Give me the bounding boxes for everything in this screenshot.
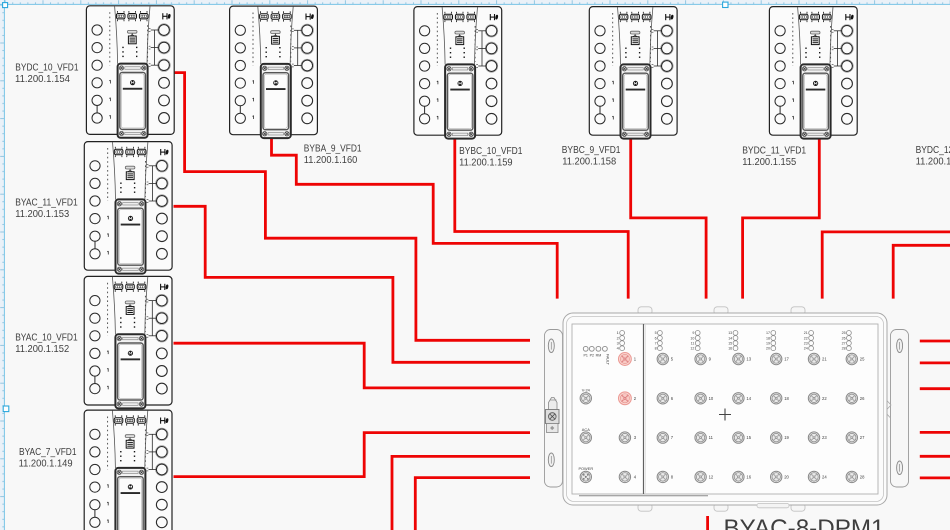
svg-text:BYBC_9_VFD1: BYBC_9_VFD1	[562, 145, 621, 156]
svg-text:13: 13	[728, 331, 732, 335]
svg-text:10: 10	[690, 336, 694, 340]
svg-text:ACA: ACA	[582, 427, 590, 432]
svg-text:BYAC_11_VFD1: BYAC_11_VFD1	[15, 197, 78, 208]
svg-text:19: 19	[766, 341, 770, 345]
svg-text:BYAC_10_VFD1: BYAC_10_VFD1	[15, 333, 78, 344]
svg-text:16: 16	[728, 347, 732, 351]
svg-text:FAULT: FAULT	[606, 354, 610, 366]
svg-text:11.200.1.155: 11.200.1.155	[742, 157, 796, 168]
svg-text:11.200.1.149: 11.200.1.149	[19, 458, 73, 469]
svg-text:V-24: V-24	[582, 388, 591, 393]
svg-text:23: 23	[822, 435, 827, 440]
svg-text:POWER: POWER	[578, 466, 593, 471]
svg-text:18: 18	[784, 396, 789, 401]
svg-text:11: 11	[691, 341, 695, 345]
svg-text:5: 5	[655, 331, 657, 335]
svg-text:13: 13	[746, 357, 751, 362]
svg-text:15: 15	[746, 435, 751, 440]
svg-text:25: 25	[842, 331, 846, 335]
svg-text:16: 16	[746, 475, 751, 480]
svg-text:22: 22	[804, 336, 808, 340]
svg-text:6: 6	[655, 336, 657, 340]
svg-text:28: 28	[860, 475, 865, 480]
svg-text:BYDC_12_VFD1: BYDC_12_VFD1	[916, 145, 950, 156]
svg-text:11.200.1.153: 11.200.1.153	[15, 209, 69, 220]
svg-text:RM: RM	[596, 353, 602, 357]
svg-text:17: 17	[784, 357, 789, 362]
svg-text:18: 18	[766, 336, 770, 340]
svg-text:25: 25	[860, 357, 865, 362]
svg-text:7: 7	[655, 341, 657, 345]
svg-text:BYAC_7_VFD1: BYAC_7_VFD1	[19, 447, 77, 458]
svg-text:11.200.1.152: 11.200.1.152	[15, 344, 69, 355]
svg-text:26: 26	[842, 336, 846, 340]
svg-text:BYBA_9_VFD1: BYBA_9_VFD1	[304, 144, 362, 155]
svg-text:14: 14	[728, 336, 732, 340]
svg-text:12: 12	[690, 347, 694, 351]
svg-text:BYDC_11_VFD1: BYDC_11_VFD1	[742, 145, 806, 156]
svg-text:15: 15	[728, 341, 732, 345]
svg-text:20: 20	[766, 347, 770, 351]
svg-text:28: 28	[842, 347, 846, 351]
svg-text:BYAC-8-DPM1: BYAC-8-DPM1	[724, 515, 885, 530]
svg-text:11.200.1.160: 11.200.1.160	[304, 155, 358, 166]
svg-text:21: 21	[822, 357, 827, 362]
svg-text:24: 24	[804, 347, 808, 351]
svg-text:20: 20	[784, 475, 789, 480]
svg-text:P2: P2	[590, 353, 594, 357]
svg-text:17: 17	[766, 331, 770, 335]
svg-text:19: 19	[784, 435, 789, 440]
svg-text:24: 24	[822, 475, 827, 480]
svg-text:9: 9	[692, 331, 694, 335]
svg-text:11: 11	[709, 435, 714, 440]
svg-text:12: 12	[709, 475, 714, 480]
svg-text:22: 22	[822, 396, 827, 401]
svg-text:11.200.1.158: 11.200.1.158	[562, 157, 616, 168]
svg-text:14: 14	[746, 396, 751, 401]
svg-text:27: 27	[860, 435, 865, 440]
svg-text:11.200.1.156: 11.200.1.156	[916, 156, 950, 167]
svg-text:26: 26	[860, 396, 865, 401]
svg-text:21: 21	[804, 331, 808, 335]
svg-text:11.200.1.154: 11.200.1.154	[15, 74, 70, 85]
svg-text:23: 23	[804, 341, 808, 345]
svg-text:BYDC_10_VFD1: BYDC_10_VFD1	[15, 62, 78, 73]
svg-text:P1: P1	[583, 353, 587, 357]
svg-text:8: 8	[655, 347, 657, 351]
svg-text:10: 10	[709, 396, 714, 401]
svg-text:27: 27	[842, 341, 846, 345]
svg-text:BYBC_10_VFD1: BYBC_10_VFD1	[459, 146, 522, 157]
svg-text:11.200.1.159: 11.200.1.159	[459, 157, 513, 168]
